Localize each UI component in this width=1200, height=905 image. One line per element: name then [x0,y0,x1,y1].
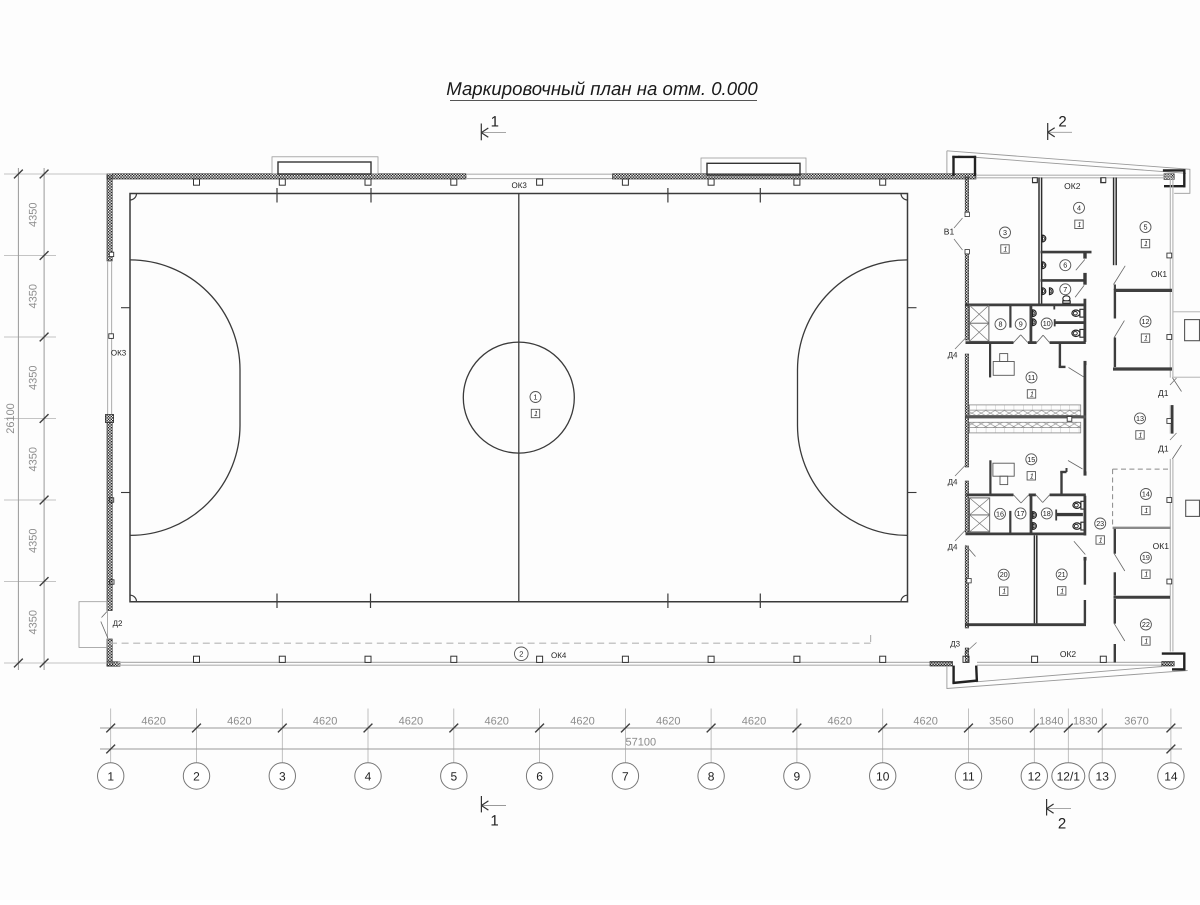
svg-text:1840: 1840 [1039,716,1063,728]
svg-text:4620: 4620 [484,716,508,728]
svg-text:ОК3: ОК3 [111,348,127,357]
svg-text:22: 22 [1142,620,1150,629]
svg-text:1: 1 [1077,220,1081,229]
svg-text:2: 2 [519,650,523,659]
svg-text:4620: 4620 [742,716,766,728]
svg-text:13: 13 [1096,769,1110,783]
svg-text:4: 4 [365,769,372,783]
svg-text:ОК1: ОК1 [1153,541,1170,551]
svg-text:4350: 4350 [28,366,40,390]
svg-text:1: 1 [534,409,538,418]
svg-text:4350: 4350 [28,284,40,308]
svg-text:11: 11 [1028,373,1035,382]
svg-text:1: 1 [1060,586,1064,595]
svg-text:1: 1 [1002,587,1006,596]
svg-text:Д1: Д1 [1158,443,1169,453]
svg-text:12/1: 12/1 [1057,769,1081,783]
svg-text:12: 12 [1028,769,1042,783]
svg-text:Д2: Д2 [113,619,123,628]
svg-text:57100: 57100 [626,737,657,749]
svg-text:ОК2: ОК2 [1064,181,1081,191]
svg-text:14: 14 [1142,490,1150,499]
svg-text:4620: 4620 [913,716,937,728]
svg-text:В1: В1 [944,227,955,237]
svg-text:1: 1 [1030,471,1034,480]
svg-text:4620: 4620 [227,716,251,728]
svg-text:4620: 4620 [656,716,680,728]
svg-text:3: 3 [1003,228,1007,237]
svg-text:4: 4 [1077,203,1081,212]
svg-text:1: 1 [1030,389,1034,398]
svg-text:11: 11 [962,769,975,783]
svg-text:19: 19 [1142,553,1150,562]
svg-text:2: 2 [193,769,200,783]
svg-text:ОК3: ОК3 [512,181,528,190]
svg-text:7: 7 [622,769,629,783]
svg-text:2: 2 [1058,114,1066,131]
svg-text:4620: 4620 [399,716,423,728]
svg-text:Д1: Д1 [1158,388,1169,398]
svg-text:ОК4: ОК4 [551,651,567,660]
svg-text:9: 9 [1019,320,1023,329]
svg-text:1: 1 [1144,334,1148,343]
svg-text:4620: 4620 [313,716,337,728]
svg-text:1: 1 [1144,570,1148,579]
svg-text:Маркировочный план на отм. 0.0: Маркировочный план на отм. 0.000 [446,78,758,99]
svg-text:20: 20 [1000,570,1008,579]
svg-text:4350: 4350 [28,610,40,634]
svg-text:9: 9 [794,769,801,783]
svg-text:1: 1 [107,769,114,783]
svg-text:18: 18 [1043,509,1051,518]
svg-text:1: 1 [1144,239,1148,248]
svg-text:6: 6 [1063,261,1067,270]
svg-text:13: 13 [1136,414,1144,423]
svg-text:6: 6 [536,769,543,783]
svg-text:1: 1 [491,114,499,131]
svg-text:5: 5 [450,769,457,783]
svg-text:ОК2: ОК2 [1060,649,1077,659]
svg-text:1: 1 [1144,506,1148,515]
svg-text:4350: 4350 [28,529,40,553]
svg-text:3560: 3560 [989,716,1013,728]
svg-text:1830: 1830 [1073,716,1097,728]
svg-text:8: 8 [708,769,715,783]
svg-text:1: 1 [490,813,498,830]
svg-text:1: 1 [1138,430,1142,439]
svg-text:Д3: Д3 [950,640,960,649]
svg-text:23: 23 [1096,519,1104,528]
svg-text:ОК1: ОК1 [1151,269,1168,279]
svg-text:4350: 4350 [28,447,40,471]
svg-text:17: 17 [1017,509,1025,518]
svg-text:7: 7 [1063,285,1067,294]
svg-text:8: 8 [999,320,1003,329]
svg-text:15: 15 [1027,455,1035,464]
svg-text:1: 1 [1099,536,1103,545]
svg-text:Д4: Д4 [948,543,958,552]
svg-text:10: 10 [1043,319,1051,328]
svg-text:10: 10 [876,769,890,783]
svg-text:4620: 4620 [141,716,165,728]
svg-text:3670: 3670 [1124,716,1148,728]
svg-text:16: 16 [996,509,1004,518]
svg-text:12: 12 [1142,317,1150,326]
svg-text:1: 1 [534,393,538,402]
svg-text:3: 3 [279,769,286,783]
svg-text:4620: 4620 [828,716,852,728]
svg-text:21: 21 [1058,570,1066,579]
svg-text:14: 14 [1164,769,1178,783]
svg-text:2: 2 [1058,816,1066,833]
svg-text:4350: 4350 [28,203,40,227]
svg-text:26100: 26100 [5,403,17,434]
svg-text:Д4: Д4 [948,351,958,360]
svg-text:5: 5 [1144,223,1148,232]
svg-text:4620: 4620 [570,716,594,728]
svg-text:1: 1 [1144,637,1148,646]
svg-text:1: 1 [1003,245,1007,254]
svg-text:Д4: Д4 [948,478,958,487]
